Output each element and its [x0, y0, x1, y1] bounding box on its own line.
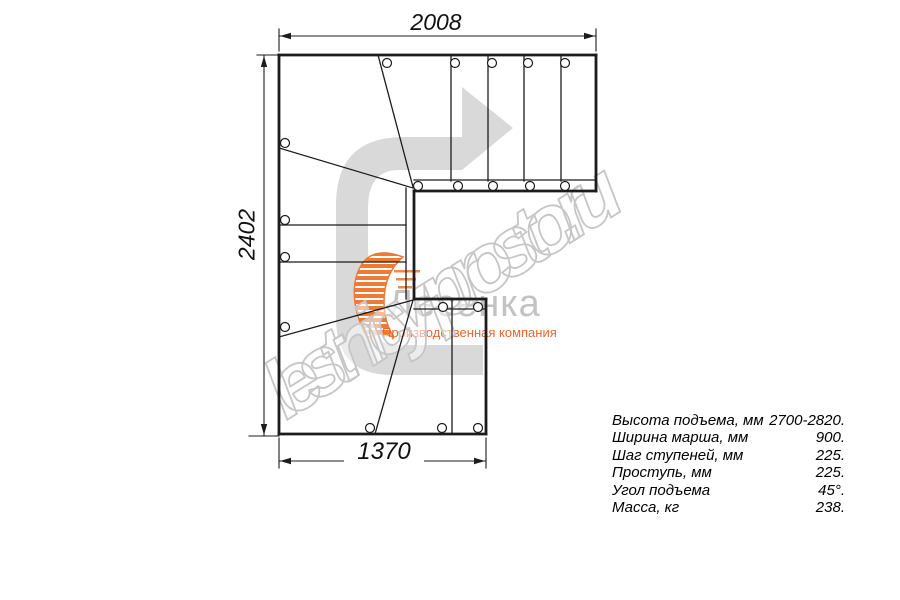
screw-hole: [366, 424, 375, 433]
spec-value: 45°.: [818, 482, 845, 499]
screw-hole: [524, 59, 533, 68]
screw-hole: [438, 424, 447, 433]
screw-hole: [526, 182, 535, 191]
dimension-arrowhead: [280, 458, 291, 464]
spec-value: 2700-2820.: [769, 412, 845, 429]
screw-hole: [281, 253, 290, 262]
spec-row: Высота подъема, мм2700-2820.: [612, 412, 845, 429]
spec-row: Угол подъема45°.: [612, 482, 845, 499]
screw-hole: [474, 303, 483, 312]
spec-label: Шаг ступеней, мм: [612, 447, 743, 464]
spec-value: 900.: [816, 429, 845, 446]
spec-row: Ширина марша, мм900.: [612, 429, 845, 446]
dimension-arrowhead: [280, 33, 291, 39]
screw-hole: [281, 216, 290, 225]
spec-value: 225.: [816, 464, 845, 481]
screw-hole: [488, 59, 497, 68]
watermark-text: lestnicy-prosto.ru: [247, 145, 637, 435]
screw-hole: [561, 59, 570, 68]
spec-label: Масса, кг: [612, 499, 679, 516]
spec-label: Проступь, мм: [612, 464, 712, 481]
dimension-bottom-label: 1370: [344, 438, 424, 466]
screw-hole: [454, 182, 463, 191]
screw-hole: [383, 59, 392, 68]
screw-hole: [414, 182, 423, 191]
screw-hole: [439, 303, 448, 312]
screw-hole: [281, 323, 290, 332]
dimension-arrowhead: [261, 56, 267, 67]
spec-label: Угол подъема: [612, 482, 710, 499]
dimension-arrowhead: [584, 33, 595, 39]
spec-row: Масса, кг238.: [612, 499, 845, 516]
spec-row: Проступь, мм225.: [612, 464, 845, 481]
screw-hole: [474, 424, 483, 433]
spec-value: 238.: [816, 499, 845, 516]
spec-label: Ширина марша, мм: [612, 429, 748, 446]
screw-hole: [489, 182, 498, 191]
dimension-arrowhead: [261, 424, 267, 435]
dimension-top-label: 2008: [392, 9, 480, 36]
spec-value: 225.: [816, 447, 845, 464]
spec-row: Шаг ступеней, мм225.: [612, 447, 845, 464]
screw-hole: [281, 139, 290, 148]
dimension-left-label: 2402: [234, 185, 261, 285]
staircase-drawing-page: Лесенка Производственная компания lestni…: [0, 0, 900, 600]
dimension-arrowhead: [474, 458, 485, 464]
specs-table: Высота подъема, мм2700-2820.Ширина марша…: [612, 412, 845, 516]
spec-label: Высота подъема, мм: [612, 412, 764, 429]
screw-hole: [561, 182, 570, 191]
screw-hole: [451, 59, 460, 68]
